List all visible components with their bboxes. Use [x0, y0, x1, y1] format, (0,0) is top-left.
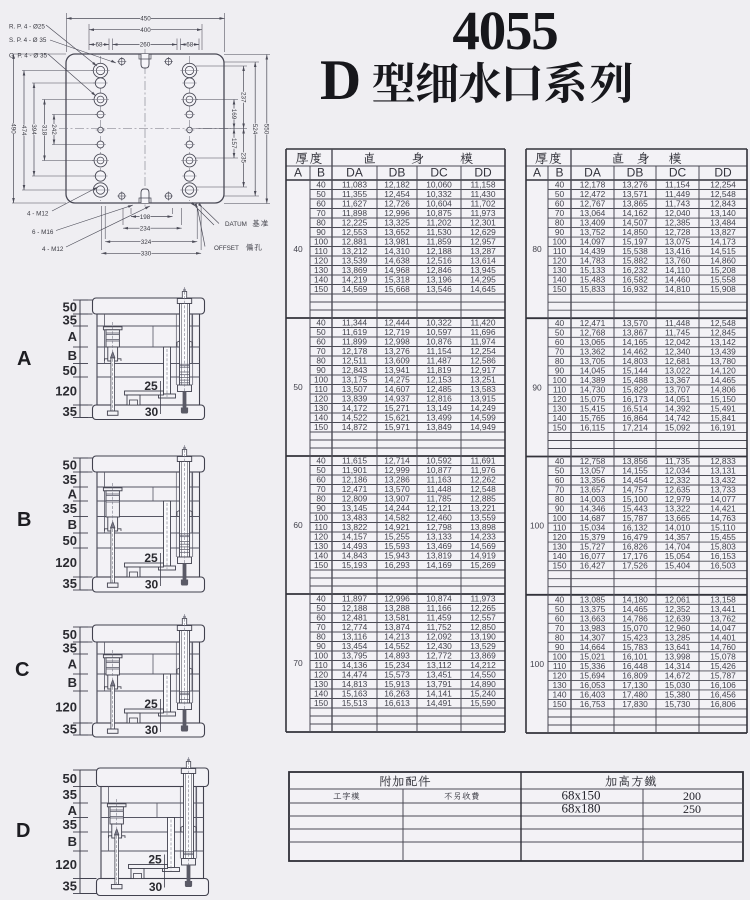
svg-text:11,745: 11,745 — [665, 327, 690, 337]
svg-text:13,945: 13,945 — [470, 265, 496, 275]
svg-text:12,816: 12,816 — [426, 393, 452, 403]
svg-text:120: 120 — [55, 857, 77, 872]
svg-text:110: 110 — [553, 522, 567, 532]
svg-text:12,254: 12,254 — [710, 179, 736, 189]
svg-text:120: 120 — [314, 255, 328, 265]
svg-text:14,047: 14,047 — [710, 622, 736, 632]
svg-text:13,819: 13,819 — [426, 550, 452, 560]
svg-text:25: 25 — [148, 853, 162, 867]
svg-text:318: 318 — [40, 125, 47, 136]
svg-text:260: 260 — [140, 42, 151, 49]
svg-text:12,548: 12,548 — [710, 317, 736, 327]
svg-text:14,097: 14,097 — [580, 236, 606, 246]
svg-text:16,173: 16,173 — [622, 393, 648, 403]
svg-text:70: 70 — [555, 346, 565, 356]
svg-text:12,188: 12,188 — [341, 603, 367, 613]
svg-text:200: 200 — [683, 789, 701, 803]
svg-text:DC: DC — [430, 165, 448, 179]
svg-text:12,881: 12,881 — [341, 236, 367, 246]
svg-text:14,460: 14,460 — [665, 274, 691, 284]
svg-text:35: 35 — [63, 501, 77, 516]
svg-text:G. P. 4 - Ø 35: G. P. 4 - Ø 35 — [9, 53, 48, 60]
svg-text:15,593: 15,593 — [384, 541, 410, 551]
svg-text:12,635: 12,635 — [665, 484, 691, 494]
svg-text:60: 60 — [316, 336, 326, 346]
svg-text:15,841: 15,841 — [710, 413, 736, 423]
svg-text:11,899: 11,899 — [342, 336, 367, 346]
svg-text:35: 35 — [63, 576, 77, 591]
svg-text:13,190: 13,190 — [470, 631, 496, 641]
svg-text:13,981: 13,981 — [384, 236, 410, 246]
svg-text:130: 130 — [553, 403, 567, 413]
svg-text:12,430: 12,430 — [426, 641, 452, 651]
svg-text:12,444: 12,444 — [384, 317, 410, 327]
svg-text:10,322: 10,322 — [426, 317, 452, 327]
svg-text:15,234: 15,234 — [384, 660, 410, 670]
svg-text:15,488: 15,488 — [622, 374, 648, 384]
svg-text:50: 50 — [63, 771, 77, 786]
svg-text:11,615: 11,615 — [342, 455, 367, 465]
svg-text:12,586: 12,586 — [470, 355, 496, 365]
svg-text:14,704: 14,704 — [665, 541, 691, 551]
svg-text:B: B — [68, 517, 77, 532]
svg-text:110: 110 — [314, 246, 328, 256]
svg-text:120: 120 — [314, 393, 328, 403]
svg-text:13,212: 13,212 — [341, 246, 367, 256]
svg-text:250: 250 — [683, 802, 701, 816]
svg-text:13,286: 13,286 — [384, 474, 410, 484]
svg-text:12,548: 12,548 — [710, 189, 736, 199]
svg-text:50: 50 — [63, 533, 77, 548]
svg-text:150: 150 — [314, 284, 328, 294]
svg-text:35: 35 — [63, 817, 77, 832]
svg-text:12,996: 12,996 — [384, 593, 410, 603]
svg-text:30: 30 — [145, 578, 159, 592]
svg-text:15,730: 15,730 — [665, 699, 691, 709]
svg-text:14,763: 14,763 — [710, 513, 736, 523]
svg-text:50: 50 — [316, 465, 326, 475]
svg-text:A: A — [17, 348, 31, 370]
svg-text:25: 25 — [144, 379, 158, 393]
svg-text:15,197: 15,197 — [622, 236, 648, 246]
svg-text:12,516: 12,516 — [426, 255, 452, 265]
svg-text:14,850: 14,850 — [622, 227, 648, 237]
svg-text:14,401: 14,401 — [710, 632, 736, 642]
svg-text:234: 234 — [140, 225, 151, 232]
svg-text:15,913: 15,913 — [384, 679, 410, 689]
svg-text:10,604: 10,604 — [426, 198, 452, 208]
svg-text:13,251: 13,251 — [470, 374, 496, 384]
svg-text:13,849: 13,849 — [426, 422, 452, 432]
svg-text:400: 400 — [140, 27, 151, 34]
svg-text:13,657: 13,657 — [580, 484, 606, 494]
svg-text:80: 80 — [555, 217, 565, 227]
svg-text:16,932: 16,932 — [622, 284, 648, 294]
svg-text:B: B — [68, 834, 77, 849]
svg-text:90: 90 — [555, 503, 565, 513]
svg-text:14,275: 14,275 — [384, 374, 410, 384]
svg-text:12,511: 12,511 — [342, 355, 367, 365]
svg-text:70: 70 — [316, 208, 326, 218]
svg-text:15,110: 15,110 — [711, 522, 736, 532]
svg-text:140: 140 — [553, 413, 567, 423]
svg-text:15,803: 15,803 — [710, 541, 736, 551]
svg-text:15,092: 15,092 — [665, 422, 691, 432]
svg-text:14,507: 14,507 — [622, 217, 648, 227]
svg-text:14,786: 14,786 — [622, 613, 648, 623]
svg-text:12,385: 12,385 — [665, 217, 691, 227]
svg-text:100: 100 — [553, 374, 567, 384]
svg-text:13,175: 13,175 — [341, 374, 367, 384]
svg-text:15,271: 15,271 — [384, 403, 410, 413]
svg-text:12,061: 12,061 — [665, 594, 691, 604]
svg-text:13,057: 13,057 — [580, 465, 606, 475]
svg-text:16,263: 16,263 — [384, 688, 410, 698]
svg-text:150: 150 — [553, 699, 567, 709]
svg-text:12,042: 12,042 — [665, 336, 691, 346]
svg-text:14,314: 14,314 — [665, 660, 691, 670]
svg-text:13,898: 13,898 — [470, 522, 496, 532]
svg-text:13,614: 13,614 — [470, 255, 496, 265]
svg-text:14,493: 14,493 — [341, 541, 367, 551]
svg-text:15,255: 15,255 — [384, 531, 410, 541]
svg-text:16,427: 16,427 — [580, 560, 606, 570]
svg-text:C: C — [15, 659, 29, 681]
svg-text:DC: DC — [669, 165, 687, 179]
svg-text:11,973: 11,973 — [470, 593, 495, 603]
svg-text:13,867: 13,867 — [622, 327, 648, 337]
svg-text:150: 150 — [553, 422, 567, 432]
svg-text:14,569: 14,569 — [470, 541, 496, 551]
svg-text:13,409: 13,409 — [580, 217, 606, 227]
svg-text:15,054: 15,054 — [665, 551, 691, 561]
svg-text:13,356: 13,356 — [580, 475, 606, 485]
svg-text:150: 150 — [314, 698, 328, 708]
svg-text:100: 100 — [314, 374, 328, 384]
svg-text:11,163: 11,163 — [426, 474, 451, 484]
svg-text:14,454: 14,454 — [622, 475, 648, 485]
svg-text:12,153: 12,153 — [426, 374, 452, 384]
svg-text:13,375: 13,375 — [580, 603, 606, 613]
svg-text:13,022: 13,022 — [665, 365, 691, 375]
svg-text:13,075: 13,075 — [665, 236, 691, 246]
svg-text:14,860: 14,860 — [710, 255, 736, 265]
svg-text:17,480: 17,480 — [622, 689, 648, 699]
svg-text:16,809: 16,809 — [622, 670, 648, 680]
svg-text:16,753: 16,753 — [580, 699, 606, 709]
svg-text:DD: DD — [714, 165, 732, 179]
svg-text:13,869: 13,869 — [341, 265, 367, 275]
svg-text:14,949: 14,949 — [470, 422, 496, 432]
svg-text:15,426: 15,426 — [710, 660, 736, 670]
svg-text:14,638: 14,638 — [384, 255, 410, 265]
svg-text:13,571: 13,571 — [622, 189, 648, 199]
svg-text:14,806: 14,806 — [710, 384, 736, 394]
svg-text:140: 140 — [314, 688, 328, 698]
svg-text:16,053: 16,053 — [580, 679, 606, 689]
svg-text:13,145: 13,145 — [341, 503, 367, 513]
svg-text:14,389: 14,389 — [580, 374, 606, 384]
svg-text:13,915: 13,915 — [470, 393, 496, 403]
svg-text:15,908: 15,908 — [710, 284, 736, 294]
svg-text:120: 120 — [55, 384, 77, 399]
svg-text:35: 35 — [63, 404, 77, 419]
svg-text:13,529: 13,529 — [470, 641, 496, 651]
svg-text:50: 50 — [316, 189, 326, 199]
svg-text:14,212: 14,212 — [470, 660, 496, 670]
svg-text:14,077: 14,077 — [710, 494, 736, 504]
svg-text:13,322: 13,322 — [665, 503, 691, 513]
svg-text:13,288: 13,288 — [384, 603, 410, 613]
svg-text:120: 120 — [553, 532, 567, 542]
svg-text:13,133: 13,133 — [426, 531, 452, 541]
svg-text:13,983: 13,983 — [580, 622, 606, 632]
svg-text:70: 70 — [316, 346, 326, 356]
svg-text:11,166: 11,166 — [426, 603, 451, 613]
svg-text:14,180: 14,180 — [622, 594, 648, 604]
svg-text:13,869: 13,869 — [470, 650, 496, 660]
svg-text:70: 70 — [555, 484, 565, 494]
svg-text:14,730: 14,730 — [580, 384, 606, 394]
svg-text:16,806: 16,806 — [710, 699, 736, 709]
svg-text:11,976: 11,976 — [470, 465, 495, 475]
svg-text:100: 100 — [314, 236, 328, 246]
svg-text:15,379: 15,379 — [580, 532, 606, 542]
svg-text:40: 40 — [316, 455, 326, 465]
svg-text:12,998: 12,998 — [384, 336, 410, 346]
svg-text:15,415: 15,415 — [580, 403, 606, 413]
svg-text:15,538: 15,538 — [622, 246, 648, 256]
svg-text:15,455: 15,455 — [710, 532, 736, 542]
svg-text:90: 90 — [316, 365, 326, 375]
svg-text:80: 80 — [532, 244, 542, 254]
svg-text:14,569: 14,569 — [341, 284, 367, 294]
svg-text:15,971: 15,971 — [384, 422, 410, 432]
svg-text:60: 60 — [316, 474, 326, 484]
svg-text:70: 70 — [316, 484, 326, 494]
svg-text:14,783: 14,783 — [580, 255, 606, 265]
svg-text:12,996: 12,996 — [384, 208, 410, 218]
svg-text:14,310: 14,310 — [384, 246, 410, 256]
svg-text:15,833: 15,833 — [580, 284, 606, 294]
svg-text:13,791: 13,791 — [426, 679, 452, 689]
svg-text:13,276: 13,276 — [622, 179, 648, 189]
svg-text:14,872: 14,872 — [341, 422, 367, 432]
svg-text:16,503: 16,503 — [710, 560, 736, 570]
svg-text:14,550: 14,550 — [470, 669, 496, 679]
svg-text:10,875: 10,875 — [426, 208, 452, 218]
svg-text:12,557: 12,557 — [470, 612, 496, 622]
svg-text:15,100: 15,100 — [622, 494, 648, 504]
svg-text:150: 150 — [314, 560, 328, 570]
svg-text:12,481: 12,481 — [341, 612, 367, 622]
svg-text:12,833: 12,833 — [710, 456, 736, 466]
svg-text:13,432: 13,432 — [710, 475, 736, 485]
svg-text:90: 90 — [316, 227, 326, 237]
svg-text:17,830: 17,830 — [622, 699, 648, 709]
svg-text:140: 140 — [314, 274, 328, 284]
svg-text:15,163: 15,163 — [341, 688, 367, 698]
svg-text:110: 110 — [314, 384, 328, 394]
svg-text:35: 35 — [63, 313, 77, 328]
svg-text:12,040: 12,040 — [665, 208, 691, 218]
svg-text:120: 120 — [55, 555, 77, 570]
svg-text:11,430: 11,430 — [470, 189, 495, 199]
svg-text:16,864: 16,864 — [622, 413, 648, 423]
svg-text:14,599: 14,599 — [470, 412, 496, 422]
svg-text:11,819: 11,819 — [426, 365, 451, 375]
svg-text:12,798: 12,798 — [426, 522, 452, 532]
svg-text:OFFSET: OFFSET — [214, 245, 239, 252]
svg-text:15,269: 15,269 — [470, 560, 496, 570]
svg-text:15,078: 15,078 — [710, 651, 736, 661]
svg-text:198: 198 — [140, 214, 151, 221]
svg-text:R. P. 4 - Ø25: R. P. 4 - Ø25 — [9, 24, 45, 31]
svg-text:12,092: 12,092 — [426, 631, 452, 641]
svg-text:DB: DB — [627, 165, 644, 179]
svg-text:13,822: 13,822 — [341, 522, 367, 532]
svg-text:15,030: 15,030 — [665, 679, 691, 689]
svg-text:15,573: 15,573 — [384, 669, 410, 679]
svg-text:16,101: 16,101 — [622, 651, 648, 661]
svg-text:110: 110 — [314, 522, 328, 532]
svg-text:16,191: 16,191 — [710, 422, 736, 432]
svg-text:14,110: 14,110 — [665, 265, 690, 275]
svg-text:130: 130 — [553, 541, 567, 551]
svg-text:A: A — [68, 487, 78, 502]
svg-text:130: 130 — [314, 541, 328, 551]
svg-text:16,448: 16,448 — [622, 660, 648, 670]
svg-text:10,060: 10,060 — [426, 179, 452, 189]
svg-text:13,856: 13,856 — [622, 456, 648, 466]
svg-text:90: 90 — [316, 503, 326, 513]
svg-text:110: 110 — [553, 246, 567, 256]
svg-text:17,176: 17,176 — [622, 551, 648, 561]
svg-text:15,491: 15,491 — [710, 403, 736, 413]
svg-text:80: 80 — [555, 494, 565, 504]
svg-text:120: 120 — [55, 700, 77, 715]
svg-text:A: A — [68, 329, 78, 344]
svg-text:17,130: 17,130 — [622, 679, 648, 689]
svg-text:15,513: 15,513 — [341, 698, 367, 708]
svg-text:12,681: 12,681 — [665, 355, 691, 365]
svg-text:14,742: 14,742 — [665, 413, 691, 423]
svg-text:S. P. 4 - Ø 35: S. P. 4 - Ø 35 — [9, 37, 47, 44]
svg-text:B: B — [68, 675, 77, 690]
svg-text:16,153: 16,153 — [710, 551, 736, 561]
svg-text:11,420: 11,420 — [470, 317, 495, 327]
svg-text:14,219: 14,219 — [341, 274, 367, 284]
svg-text:15,483: 15,483 — [580, 274, 606, 284]
svg-text:60: 60 — [316, 198, 326, 208]
svg-text:80: 80 — [316, 217, 326, 227]
svg-text:11,627: 11,627 — [342, 198, 367, 208]
svg-text:15,404: 15,404 — [665, 560, 691, 570]
svg-text:157: 157 — [230, 138, 237, 149]
svg-text:80: 80 — [316, 493, 326, 503]
svg-text:100: 100 — [314, 512, 328, 522]
svg-text:14,244: 14,244 — [384, 503, 410, 513]
svg-text:90: 90 — [555, 227, 565, 237]
svg-text:11,973: 11,973 — [470, 208, 495, 218]
svg-text:140: 140 — [314, 412, 328, 422]
svg-text:14,893: 14,893 — [384, 650, 410, 660]
svg-text:17,526: 17,526 — [622, 560, 648, 570]
svg-text:140: 140 — [553, 551, 567, 561]
svg-text:14,607: 14,607 — [384, 384, 410, 394]
svg-text:110: 110 — [553, 384, 567, 394]
svg-text:15,144: 15,144 — [622, 365, 648, 375]
svg-text:13,907: 13,907 — [384, 493, 410, 503]
svg-text:50: 50 — [555, 327, 565, 337]
svg-text:4 - M12: 4 - M12 — [27, 211, 49, 218]
svg-text:12,846: 12,846 — [426, 265, 452, 275]
svg-text:13,705: 13,705 — [580, 355, 606, 365]
svg-text:15,443: 15,443 — [622, 503, 648, 513]
svg-text:14,162: 14,162 — [622, 208, 648, 218]
svg-text:15,694: 15,694 — [580, 670, 606, 680]
svg-text:12,340: 12,340 — [665, 346, 691, 356]
svg-text:12,960: 12,960 — [665, 622, 691, 632]
svg-text:15,727: 15,727 — [580, 541, 606, 551]
svg-text:330: 330 — [141, 251, 152, 258]
svg-text:12,553: 12,553 — [341, 227, 367, 237]
svg-text:15,075: 15,075 — [580, 393, 606, 403]
svg-text:16,582: 16,582 — [622, 274, 648, 284]
svg-text:140: 140 — [553, 274, 567, 284]
svg-text:D: D — [16, 820, 30, 842]
svg-text:120: 120 — [314, 669, 328, 679]
svg-text:17,214: 17,214 — [622, 422, 648, 432]
svg-text:25: 25 — [144, 551, 158, 565]
svg-text:13,941: 13,941 — [384, 365, 410, 375]
svg-text:30: 30 — [145, 405, 159, 419]
svg-text:16,077: 16,077 — [580, 551, 606, 561]
svg-text:14,843: 14,843 — [341, 550, 367, 560]
svg-text:12,332: 12,332 — [665, 475, 691, 485]
svg-text:14,937: 14,937 — [384, 393, 410, 403]
svg-text:14,968: 14,968 — [384, 265, 410, 275]
svg-text:15,621: 15,621 — [384, 412, 410, 422]
svg-text:140: 140 — [553, 689, 567, 699]
svg-text:B: B — [68, 348, 77, 363]
svg-text:15,021: 15,021 — [580, 651, 606, 661]
svg-text:90: 90 — [555, 365, 565, 375]
svg-text:13,570: 13,570 — [384, 484, 410, 494]
svg-text:120: 120 — [553, 393, 567, 403]
svg-text:50: 50 — [555, 189, 565, 199]
svg-text:13,454: 13,454 — [341, 641, 367, 651]
svg-text:12,182: 12,182 — [384, 179, 410, 189]
svg-text:12,178: 12,178 — [341, 346, 367, 356]
svg-text:14,552: 14,552 — [384, 641, 410, 651]
svg-text:14,813: 14,813 — [341, 679, 367, 689]
svg-text:13,874: 13,874 — [384, 622, 410, 632]
svg-text:12,885: 12,885 — [470, 493, 496, 503]
svg-text:235: 235 — [239, 152, 246, 163]
svg-text:14,157: 14,157 — [341, 531, 367, 541]
svg-text:13,112: 13,112 — [426, 660, 451, 670]
svg-text:13,780: 13,780 — [710, 355, 736, 365]
svg-text:DATUM: DATUM — [225, 221, 247, 228]
svg-text:13,707: 13,707 — [665, 384, 691, 394]
svg-text:68: 68 — [186, 42, 194, 49]
svg-text:14,249: 14,249 — [470, 403, 496, 413]
svg-text:12,454: 12,454 — [384, 189, 410, 199]
svg-text:14,051: 14,051 — [665, 393, 691, 403]
svg-text:50: 50 — [316, 603, 326, 613]
svg-text:100: 100 — [530, 658, 544, 668]
